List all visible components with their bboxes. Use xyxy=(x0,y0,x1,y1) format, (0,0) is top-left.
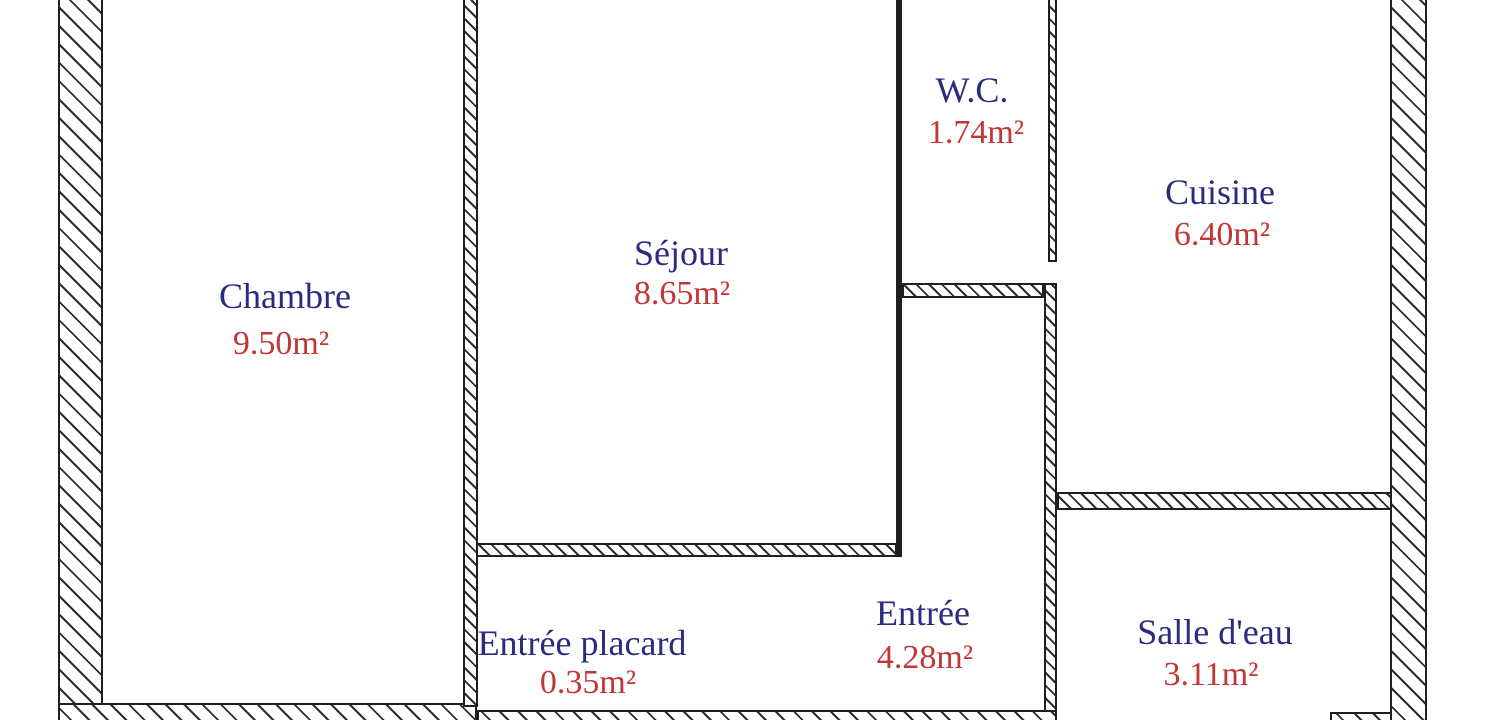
floor-plan: Chambre 9.50m² Séjour 8.65m² W.C. 1.74m²… xyxy=(0,0,1500,720)
wall-wc-cuisine xyxy=(1048,0,1057,262)
wall-wc-bottom xyxy=(902,283,1044,298)
wall-outer-left xyxy=(58,0,103,720)
wall-outer-bottom-left xyxy=(58,703,477,720)
room-area-cuisine: 6.40m² xyxy=(1174,218,1270,252)
room-name-sejour: Séjour xyxy=(634,235,728,271)
wall-entree-cuisine xyxy=(1044,283,1057,712)
wall-cuisine-salledeau xyxy=(1057,492,1392,510)
room-name-entree: Entrée xyxy=(876,595,970,631)
room-name-wc: W.C. xyxy=(936,72,1009,108)
room-area-salle-deau: 3.11m² xyxy=(1164,658,1259,692)
wall-outer-bottom-step xyxy=(1330,712,1392,720)
room-area-sejour: 8.65m² xyxy=(634,277,730,311)
room-area-wc: 1.74m² xyxy=(928,116,1024,150)
wall-sejour-bottom xyxy=(476,543,897,557)
room-name-entree-placard: Entrée placard xyxy=(478,625,687,661)
wall-sejour-wc xyxy=(896,0,902,557)
room-area-entree: 4.28m² xyxy=(877,641,973,675)
wall-chambre-sejour xyxy=(463,0,478,707)
room-name-chambre: Chambre xyxy=(219,278,351,314)
wall-outer-right xyxy=(1390,0,1427,720)
room-area-entree-placard: 0.35m² xyxy=(540,666,636,700)
room-name-cuisine: Cuisine xyxy=(1165,174,1275,210)
room-name-salle-deau: Salle d'eau xyxy=(1137,614,1292,650)
wall-outer-bottom-mid xyxy=(477,710,1057,720)
room-area-chambre: 9.50m² xyxy=(233,327,329,361)
